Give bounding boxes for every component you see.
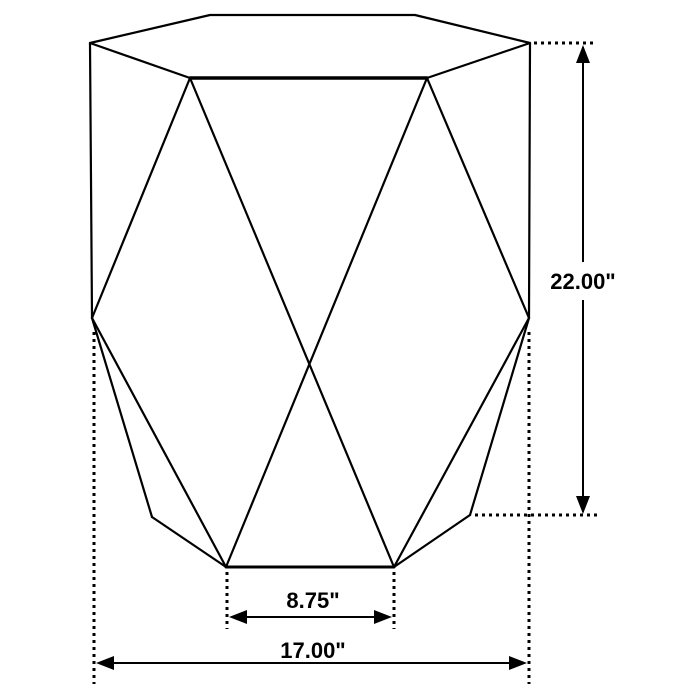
table-dimension-diagram: 22.00" 8.75" 17.00" (0, 0, 700, 700)
bottom-width-arrow-left-icon (229, 610, 247, 624)
table-outline (90, 15, 530, 567)
table-left-side-edge (90, 43, 92, 318)
facet-edge-waistright-to-cornerright (470, 318, 529, 515)
diagram-canvas: 22.00" 8.75" 17.00" (0, 0, 700, 700)
bottom-width-dimension-label: 8.75" (286, 588, 339, 613)
table-right-side-edge (529, 43, 530, 318)
dimension-height: 22.00" (475, 43, 616, 515)
overall-width-arrow-left-icon (96, 656, 114, 670)
facet-edge-topright-to-bottomleft (226, 78, 427, 567)
dimension-overall-width: 17.00" (94, 332, 529, 684)
facet-edge-waistleft-to-cornerleft (92, 318, 152, 517)
facet-edge-topleft-to-waistleft (92, 78, 190, 318)
height-arrow-up-icon (576, 45, 590, 63)
facet-edge-topright-to-waistright (427, 78, 529, 318)
table-top-hexagon (90, 15, 530, 78)
height-arrow-down-icon (576, 496, 590, 514)
dimension-bottom-width: 8.75" (227, 572, 394, 629)
facet-edge-cornerleft-to-bottomleft (152, 517, 226, 567)
overall-width-arrow-right-icon (509, 656, 527, 670)
overall-width-dimension-label: 17.00" (280, 638, 345, 663)
facet-edge-waistright-to-bottomright (394, 318, 529, 567)
facet-edge-topleft-to-bottomright (190, 78, 394, 567)
facet-edge-waistleft-to-bottomleft (92, 318, 226, 567)
facet-edge-cornerright-to-bottomright (394, 515, 470, 567)
height-dimension-label: 22.00" (550, 269, 615, 294)
bottom-width-arrow-right-icon (374, 610, 392, 624)
